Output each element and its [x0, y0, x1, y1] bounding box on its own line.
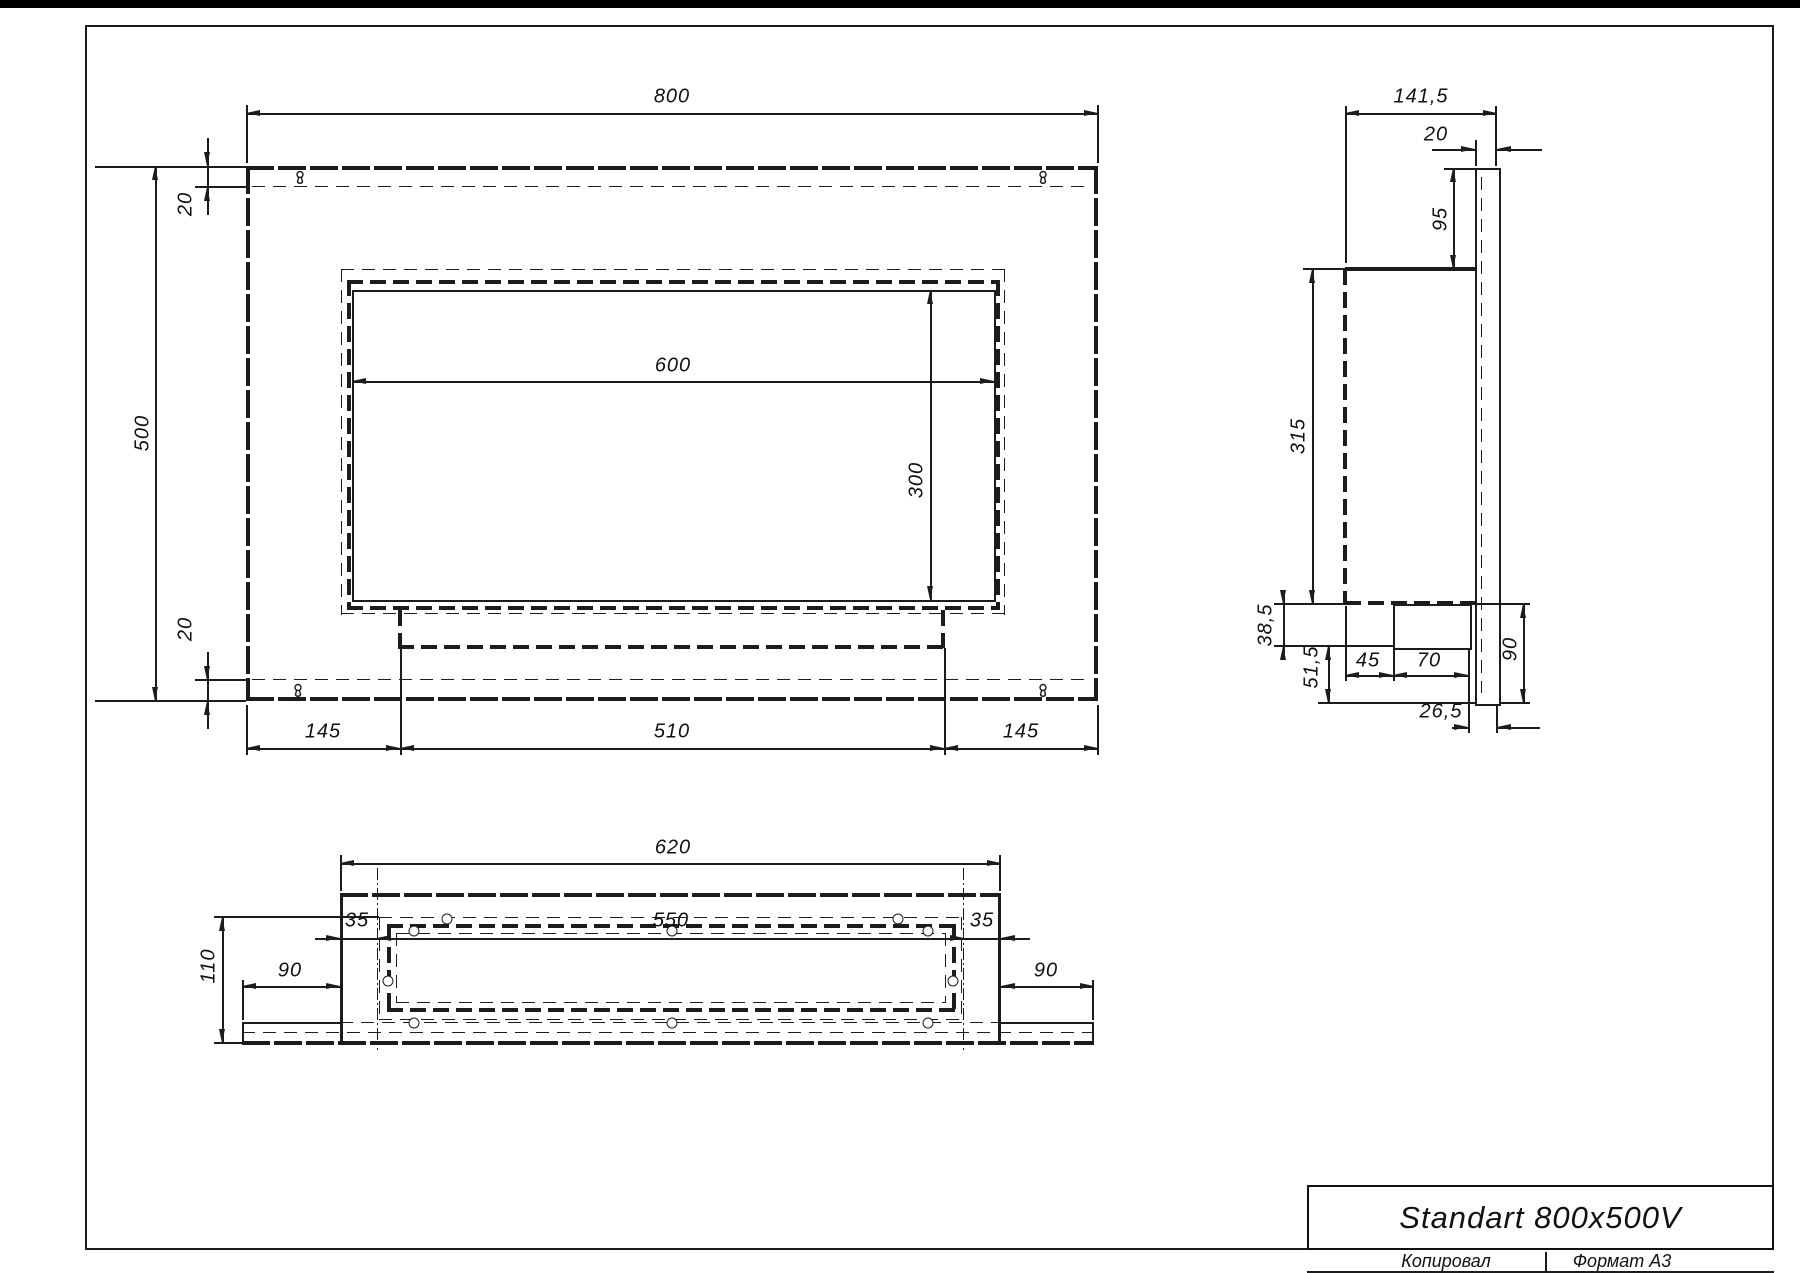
ext-line: [1475, 140, 1477, 166]
ext-line: [1444, 168, 1475, 170]
dim-plate-left: 90: [278, 960, 302, 983]
front-flange-line-bottom: [252, 679, 1092, 680]
opening-dash-outer: [341, 269, 1006, 270]
screw-hole: [923, 926, 934, 937]
plate-top-right: [1001, 1022, 1094, 1024]
tray-dash-inner: [396, 1002, 946, 1003]
screw-hole: [442, 914, 453, 925]
dim-line-bottom: [246, 748, 1098, 750]
footer-underline: [1307, 1271, 1774, 1273]
tray-side-right: [941, 610, 945, 648]
tray-bottom: [398, 645, 944, 649]
wall-plate-hidden-edge: [1481, 177, 1482, 693]
dim-line-300: [930, 290, 932, 600]
plate-end-right: [1092, 1022, 1094, 1045]
opening-dash-outer: [1004, 269, 1005, 615]
screw-hole: [893, 914, 904, 925]
title-block: Standart 800x500V: [1307, 1185, 1774, 1250]
opening-dash-inner: [347, 606, 1000, 610]
screw-hole: [923, 1018, 934, 1029]
dim-margin-left: 145: [305, 721, 341, 744]
dim-plate-below-body: 90: [1500, 637, 1523, 661]
body-top-edge: [340, 893, 1001, 897]
front-outline-left: [246, 166, 250, 701]
tray-side-left: [398, 610, 402, 648]
ext-line: [400, 648, 402, 755]
screw-hole: [667, 1018, 678, 1029]
tray-dash-outer: [961, 917, 962, 1020]
dim-plate-above-body: 95: [1430, 207, 1453, 231]
tray-dash-mid: [387, 1008, 955, 1012]
opening-dash-inner: [347, 280, 351, 610]
drawing-title: Standart 800x500V: [1399, 1200, 1681, 1236]
ext-line: [944, 648, 946, 755]
ext-line: [1345, 106, 1347, 263]
drawing-sheet: 800 500 20 20 600 300: [0, 0, 1800, 1273]
dim-front-flange-bottom: 20: [175, 617, 198, 641]
dim-front-height: 500: [132, 415, 155, 451]
ext-line: [1345, 606, 1347, 681]
ext-line: [195, 186, 246, 188]
dim-tray-offset: 45: [1356, 650, 1380, 673]
frame-top: [85, 25, 1774, 27]
tray-dash-inner: [945, 933, 946, 1003]
ext-line: [1468, 648, 1470, 733]
centerline: [963, 868, 964, 1050]
tray-profile: [1393, 604, 1472, 650]
dim-opening-height: 300: [906, 462, 929, 498]
dim-tray-depth: 70: [1417, 650, 1441, 673]
top-black-bar: [0, 0, 1800, 8]
dim-tray-width: 510: [654, 721, 690, 744]
dim-line-110: [222, 917, 224, 1043]
front-flange-line-top: [252, 186, 1092, 187]
dim-line-600: [352, 381, 994, 383]
dim-body-height: 315: [1288, 418, 1311, 454]
dim-line-141: [1345, 113, 1497, 115]
plate-end-left: [242, 1022, 244, 1045]
dim-line-620: [340, 863, 1001, 865]
body-side-right: [998, 893, 1001, 1043]
footer-format: Формат А3: [1573, 1251, 1672, 1272]
opening-dash-inner: [996, 280, 1000, 610]
front-outline-top: [246, 166, 1098, 170]
opening-dash-inner: [347, 280, 1000, 284]
dim-mount-span: 550: [653, 910, 689, 933]
ext-line: [214, 916, 379, 918]
dim-front-width: 800: [654, 86, 690, 109]
plate-mid-hidden: [242, 1032, 1094, 1033]
opening-rect: [352, 290, 996, 602]
plate-top-left: [242, 1022, 340, 1024]
front-outline-bottom: [246, 697, 1098, 701]
dim-opening-width: 600: [655, 355, 691, 378]
opening-dash-outer: [341, 613, 1006, 614]
footer-divider: [1545, 1252, 1547, 1271]
dim-line-800: [246, 113, 1098, 115]
screw-hole: [409, 1018, 420, 1029]
dim-plate-right: 90: [1034, 960, 1058, 983]
dim-line-20-top: [207, 138, 209, 215]
ext-line: [95, 700, 246, 702]
dim-margin-right: 35: [970, 910, 994, 933]
dim-line-315: [1312, 269, 1314, 604]
dim-margin-left: 35: [345, 910, 369, 933]
opening-dash-outer: [341, 269, 342, 615]
dim-margin-right: 145: [1003, 721, 1039, 744]
dim-line-550: [315, 938, 1030, 940]
screw-hole: [409, 926, 420, 937]
dim-body-width: 620: [655, 837, 691, 860]
ext-line: [95, 166, 246, 168]
screw-hole: [948, 976, 959, 987]
wall-plate: [1475, 168, 1501, 706]
keyhole-slot-icon: [1037, 683, 1049, 699]
tray-dash-inner: [396, 933, 397, 1003]
dim-tray-below-body: 38,5: [1255, 604, 1278, 647]
dim-total-height: 110: [198, 949, 221, 984]
screw-hole: [383, 976, 394, 987]
body-front-edge: [1343, 269, 1347, 604]
dim-plate-thickness: 20: [1424, 124, 1448, 147]
ext-line: [195, 679, 246, 681]
keyhole-slot-icon: [1037, 170, 1049, 186]
frame-left: [85, 25, 87, 1250]
keyhole-slot-icon: [292, 683, 304, 699]
front-outline-right: [1094, 166, 1098, 701]
dim-line-500: [155, 166, 157, 701]
dim-line-95: [1453, 168, 1455, 269]
dim-line-20-bottom: [207, 652, 209, 729]
dim-rear-offset: 26,5: [1420, 701, 1463, 724]
tray-dash-outer: [379, 917, 380, 1020]
frame-right: [1772, 25, 1774, 1250]
plate-bottom-edge: [242, 1041, 1094, 1045]
dim-depth: 141,5: [1393, 86, 1448, 109]
dim-front-flange-top: 20: [175, 192, 198, 216]
keyhole-slot-icon: [294, 170, 306, 186]
dim-below-tray: 51,5: [1301, 646, 1324, 689]
footer-copied-by: Копировал: [1401, 1251, 1491, 1272]
ext-line: [1274, 645, 1393, 647]
